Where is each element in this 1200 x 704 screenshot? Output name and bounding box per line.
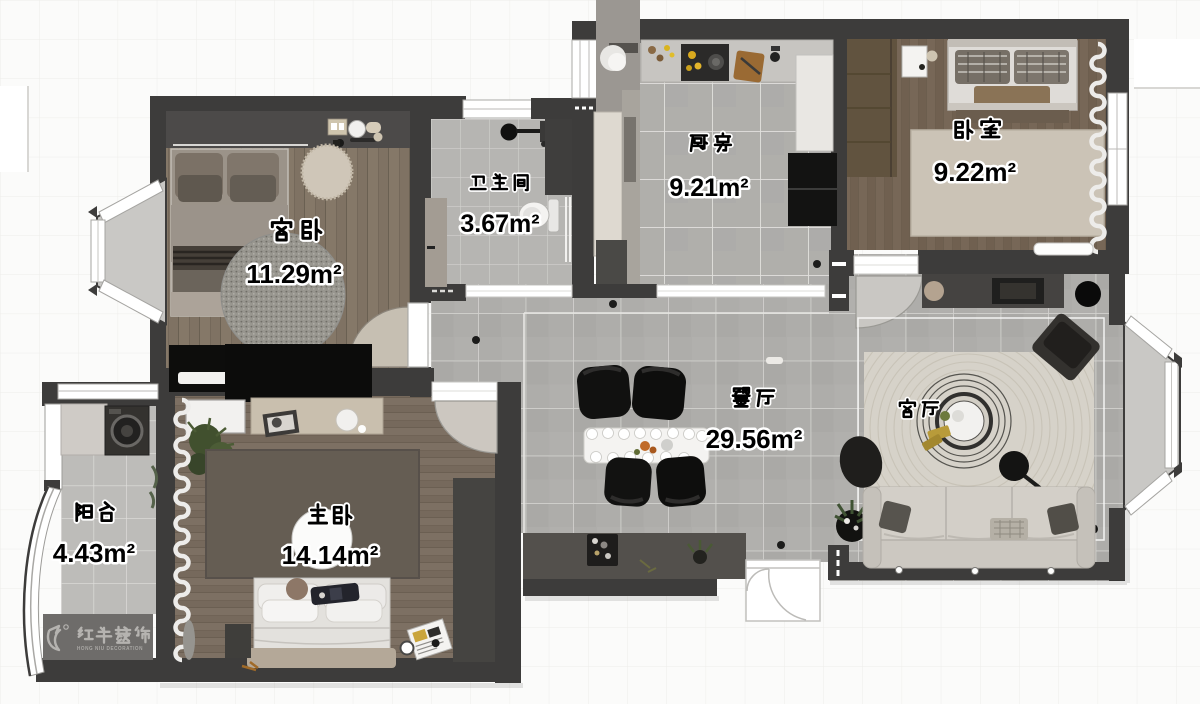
svg-text:4.43m²: 4.43m²: [53, 538, 136, 568]
svg-text:HONG NIU DECORATION: HONG NIU DECORATION: [77, 646, 143, 652]
svg-text:29.56m²: 29.56m²: [706, 424, 803, 454]
svg-text:9.22m²: 9.22m²: [934, 157, 1017, 187]
svg-text:14.14m²: 14.14m²: [282, 540, 379, 570]
svg-text:11.29m²: 11.29m²: [246, 259, 342, 289]
svg-text:9.21m²: 9.21m²: [669, 174, 748, 202]
svg-text:3.67m²: 3.67m²: [460, 210, 539, 238]
